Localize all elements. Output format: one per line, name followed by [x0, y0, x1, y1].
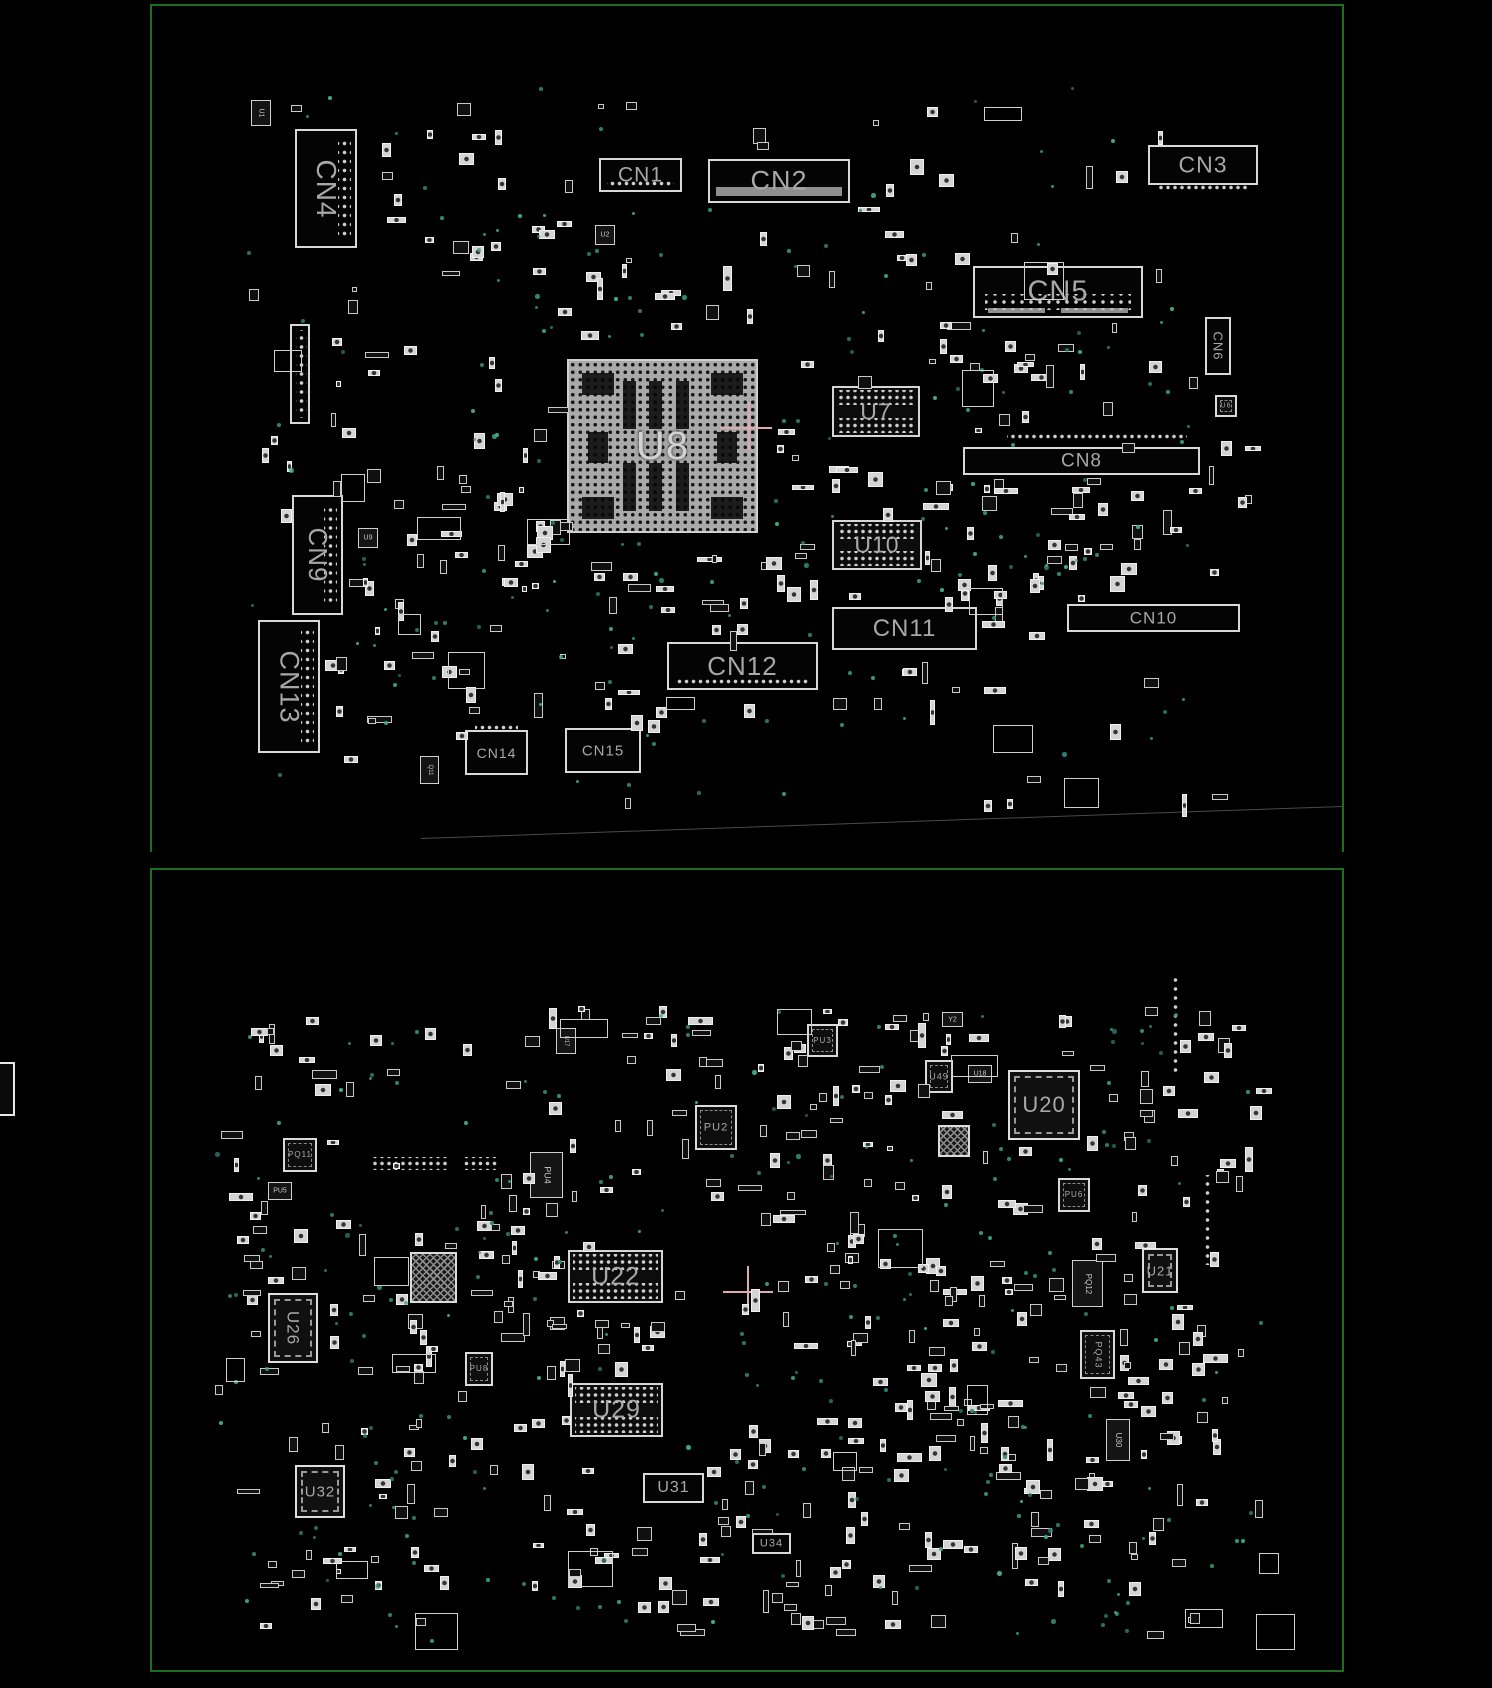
passive-component — [615, 1120, 621, 1132]
component-u8[interactable]: U8 — [567, 359, 758, 533]
passive-component — [455, 552, 468, 558]
component-label: U2 — [601, 232, 610, 239]
passive-component — [1189, 488, 1202, 494]
passive-component — [921, 1373, 937, 1387]
passive-component — [1132, 1212, 1137, 1222]
passive-component — [382, 143, 391, 157]
component-label: U7 — [860, 400, 891, 423]
component-label: CN12 — [707, 653, 777, 679]
via-dot — [1235, 1539, 1239, 1543]
passive-component — [523, 448, 528, 463]
via-dot — [638, 309, 642, 313]
component-u32[interactable]: U32 — [295, 1465, 345, 1518]
via-dot — [473, 1470, 477, 1474]
via-dot — [1028, 1493, 1032, 1497]
passive-component — [798, 1055, 808, 1067]
via-dot — [1051, 1619, 1056, 1624]
passive-component — [498, 178, 506, 190]
via-dot — [289, 468, 294, 473]
passive-component — [969, 1034, 989, 1042]
passive-component — [260, 1368, 279, 1375]
passive-component — [407, 534, 417, 546]
passive-component — [363, 1295, 375, 1302]
passive-component — [260, 1623, 272, 1629]
via-dot — [871, 193, 876, 198]
passive-component — [1007, 799, 1013, 809]
passive-component — [792, 485, 814, 490]
component-bottom_board-part-7[interactable] — [938, 1125, 970, 1157]
component-cn10[interactable]: CN10 — [1067, 604, 1240, 632]
passive-component — [895, 1182, 905, 1190]
passive-component — [712, 555, 717, 563]
passive-component — [348, 300, 358, 314]
component-cn6[interactable]: CN6 — [1205, 317, 1231, 375]
component-cn2[interactable]: CN2 — [708, 159, 850, 203]
component-label: CN3 — [1178, 154, 1227, 177]
component-pq12[interactable]: PQ12 — [1072, 1260, 1103, 1307]
passive-component — [1073, 493, 1083, 508]
component-label: U49 — [929, 1072, 949, 1081]
passive-component — [787, 1192, 795, 1200]
via-dot — [609, 627, 613, 631]
passive-component — [453, 241, 469, 254]
via-dot — [992, 1123, 996, 1127]
component-u26[interactable]: U26 — [268, 1293, 318, 1363]
passive-component — [874, 698, 882, 710]
connector-pads — [296, 330, 307, 418]
passive-component — [583, 1242, 595, 1252]
passive-component — [267, 1028, 274, 1035]
passive-component — [929, 1446, 941, 1461]
passive-component — [1092, 1238, 1102, 1250]
passive-component — [893, 1015, 907, 1022]
passive-component — [1222, 1397, 1228, 1404]
passive-component — [836, 1629, 856, 1636]
passive-component — [926, 282, 932, 290]
passive-component — [327, 1140, 339, 1145]
component-label: Q11 — [427, 765, 433, 776]
via-dot — [1007, 1157, 1011, 1161]
passive-component — [1124, 1294, 1137, 1305]
passive-component — [1100, 544, 1113, 550]
via-dot — [480, 363, 484, 367]
passive-component — [565, 1359, 580, 1372]
bga-ball-cluster — [649, 381, 662, 429]
passive-component — [1192, 1363, 1205, 1376]
passive-component — [1124, 1401, 1138, 1408]
via-dot — [933, 396, 937, 400]
passive-component — [1210, 569, 1219, 576]
passive-component — [494, 1311, 503, 1323]
via-dot — [228, 1294, 232, 1298]
via-dot — [757, 1171, 761, 1175]
passive-component — [931, 559, 941, 572]
passive-component — [358, 1367, 373, 1375]
component-label: PU6 — [1065, 1191, 1084, 1199]
passive-component — [509, 1195, 517, 1212]
passive-component — [878, 330, 884, 342]
passive-component — [666, 1069, 681, 1081]
passive-component — [626, 258, 632, 263]
passive-component — [498, 545, 505, 561]
passive-component — [971, 1276, 984, 1291]
via-dot — [542, 329, 546, 333]
passive-component — [434, 1508, 448, 1517]
passive-component — [522, 586, 527, 592]
component-pu8[interactable]: PU8 — [465, 1352, 493, 1386]
passive-component — [984, 687, 1006, 694]
passive-component — [1008, 1416, 1019, 1428]
passive-component — [655, 293, 675, 300]
via-dot — [552, 1596, 556, 1600]
passive-component — [1145, 1007, 1158, 1016]
via-dot — [471, 409, 475, 413]
component-u20[interactable]: U20 — [1008, 1070, 1080, 1140]
passive-component — [1140, 1089, 1153, 1104]
passive-component — [1019, 1147, 1032, 1156]
component-cn15[interactable]: CN15 — [565, 728, 641, 773]
passive-component — [751, 1289, 760, 1312]
passive-component — [967, 527, 974, 540]
passive-component — [247, 1295, 258, 1305]
passive-component — [557, 221, 572, 227]
passive-component — [642, 1345, 654, 1351]
passive-component — [1090, 1387, 1106, 1398]
passive-component — [868, 472, 883, 487]
component-cn9[interactable]: CN9 — [292, 495, 343, 615]
component-u31[interactable]: U31 — [643, 1473, 704, 1503]
component-cn12[interactable]: CN12 — [667, 642, 818, 690]
passive-component — [1183, 1197, 1190, 1207]
passive-component — [568, 1374, 573, 1397]
passive-component — [984, 485, 990, 493]
passive-component — [1138, 1185, 1147, 1196]
passive-component — [420, 1330, 427, 1345]
passive-component — [440, 1576, 449, 1590]
via-dot — [534, 1257, 538, 1261]
unpopulated-footprint — [448, 652, 485, 689]
via-dot — [1078, 350, 1082, 354]
via-dot — [535, 294, 540, 299]
component-pu6[interactable]: PU6 — [1058, 1178, 1090, 1212]
component-u10[interactable]: U10 — [832, 520, 922, 570]
component-label: U9 — [364, 535, 373, 542]
passive-component — [1212, 794, 1228, 800]
component-u34[interactable]: U34 — [752, 1533, 791, 1554]
passive-component — [796, 1560, 801, 1577]
passive-component — [532, 1419, 545, 1428]
component-u22[interactable]: U22 — [568, 1250, 663, 1303]
bga-ball-cluster — [623, 381, 636, 429]
passive-component — [1236, 1176, 1243, 1192]
passive-component — [777, 575, 785, 592]
via-dot — [824, 244, 828, 248]
component-label: CN10 — [1130, 610, 1177, 627]
component-cn11[interactable]: CN11 — [832, 607, 977, 650]
via-dot — [477, 248, 481, 252]
component-cn1[interactable]: CN1 — [599, 158, 682, 192]
passive-component — [648, 720, 660, 733]
passive-component — [1025, 354, 1035, 361]
component-label: CN6 — [1212, 331, 1225, 360]
passive-component — [417, 554, 424, 568]
passive-component — [801, 361, 814, 368]
passive-component — [801, 1130, 817, 1138]
passive-component — [885, 1620, 901, 1629]
passive-component — [794, 1343, 818, 1349]
passive-component — [471, 1438, 483, 1450]
component-u2[interactable]: U2 — [595, 225, 615, 245]
passive-component — [1029, 1357, 1039, 1363]
passive-component — [532, 583, 539, 589]
passive-component — [1129, 1542, 1137, 1554]
passive-component — [335, 1445, 344, 1460]
component-u9[interactable]: U9 — [358, 528, 378, 548]
unpopulated-footprint — [1064, 778, 1099, 808]
passive-component — [489, 357, 495, 369]
component-label: PU4 — [542, 1166, 551, 1184]
component-pq43[interactable]: PQ43 — [1080, 1330, 1115, 1379]
via-dot — [219, 1421, 223, 1425]
via-dot — [939, 1547, 943, 1551]
passive-component — [778, 429, 795, 435]
passive-component — [994, 488, 1018, 494]
via-dot — [796, 1154, 801, 1159]
passive-component — [833, 698, 847, 710]
passive-component — [925, 1391, 940, 1402]
passive-component — [621, 1323, 630, 1328]
passive-component — [805, 1276, 818, 1283]
passive-component — [707, 1467, 721, 1477]
passive-component — [1118, 1392, 1134, 1399]
passive-component — [415, 1233, 423, 1246]
via-dot — [419, 1414, 423, 1418]
passive-component — [859, 1467, 873, 1473]
passive-component — [1256, 1088, 1272, 1094]
component-cn13[interactable]: CN13 — [258, 620, 320, 753]
passive-component — [306, 1017, 319, 1025]
component-cn4[interactable]: CN4 — [295, 129, 357, 248]
via-dot — [261, 1248, 265, 1252]
passive-component — [842, 1560, 851, 1569]
passive-component — [849, 593, 861, 600]
passive-component — [1193, 1332, 1203, 1346]
via-dot — [1036, 533, 1040, 537]
via-dot — [252, 1552, 256, 1556]
passive-component — [858, 376, 872, 389]
unpopulated-footprint — [374, 1257, 409, 1286]
passive-component — [255, 1076, 262, 1090]
passive-component — [442, 504, 466, 510]
passive-component — [945, 1296, 953, 1306]
passive-component — [523, 1313, 530, 1336]
component-label: U21 — [1147, 1264, 1174, 1277]
component-pu5[interactable]: PU5 — [268, 1182, 292, 1200]
component-u6[interactable]: U6 — [1215, 395, 1237, 417]
component-cn14[interactable]: CN14 — [465, 730, 528, 775]
via-dot — [595, 249, 599, 253]
via-dot — [1083, 557, 1087, 561]
passive-component — [1075, 1478, 1089, 1490]
component-u21[interactable]: U21 — [1142, 1248, 1178, 1293]
passive-component — [700, 1557, 720, 1563]
passive-component — [885, 1095, 892, 1105]
passive-component — [936, 1435, 956, 1442]
passive-component — [466, 687, 476, 703]
passive-component — [632, 1169, 641, 1175]
passive-component — [504, 1301, 513, 1307]
boardview-canvas: U1CN4CN1CN2U2CN3CN5CN6U8U7CN8U6U10CN9U9C… — [0, 0, 1492, 1688]
passive-component — [533, 1543, 544, 1548]
passive-component — [425, 237, 434, 243]
passive-component — [1023, 1205, 1043, 1213]
component-pq11[interactable]: PQ11 — [283, 1138, 317, 1172]
passive-component — [810, 1104, 817, 1110]
passive-component — [745, 1481, 754, 1495]
passive-component — [899, 1523, 910, 1530]
passive-component — [907, 1365, 921, 1371]
passive-component — [980, 1447, 988, 1454]
passive-component — [577, 1310, 584, 1317]
passive-component — [1110, 576, 1125, 592]
passive-component — [1198, 1033, 1214, 1041]
component-label: CN14 — [477, 746, 517, 760]
passive-component — [772, 1593, 783, 1603]
via-dot — [345, 1233, 350, 1238]
passive-component — [644, 1033, 653, 1039]
passive-component — [1210, 1252, 1219, 1267]
via-dot — [339, 1088, 343, 1092]
passive-component — [830, 1265, 840, 1274]
passive-component — [946, 1034, 951, 1045]
passive-component — [706, 1179, 721, 1187]
passive-component — [873, 120, 879, 126]
passive-component — [927, 107, 938, 117]
passive-component — [387, 1069, 400, 1076]
component-q11[interactable]: Q11 — [420, 756, 439, 784]
unpopulated-footprint — [341, 474, 365, 502]
via-dot — [1210, 1564, 1214, 1568]
passive-component — [763, 1590, 769, 1613]
passive-component — [229, 1193, 253, 1201]
passive-component — [251, 1331, 261, 1337]
passive-component — [634, 1327, 640, 1343]
component-label: U34 — [760, 1538, 783, 1549]
passive-component — [299, 1057, 315, 1063]
passive-component — [864, 1179, 872, 1187]
passive-component — [495, 130, 502, 145]
passive-component — [548, 407, 569, 413]
via-dot — [576, 1606, 580, 1610]
passive-component — [671, 323, 682, 330]
component-y2[interactable]: Y2 — [942, 1012, 963, 1027]
passive-component — [490, 1465, 498, 1475]
via-dot — [829, 1399, 833, 1403]
passive-component — [404, 1448, 415, 1457]
passive-component — [675, 1291, 685, 1300]
component-top_board-part-8[interactable] — [290, 324, 310, 424]
passive-component — [594, 573, 605, 581]
passive-component — [740, 598, 748, 609]
unpopulated-footprint — [415, 1613, 458, 1650]
component-pu2[interactable]: PU2 — [695, 1105, 737, 1150]
passive-component — [996, 1472, 1021, 1480]
passive-component — [838, 1019, 848, 1026]
passive-component — [395, 1506, 408, 1519]
passive-component — [1011, 233, 1018, 243]
passive-component — [786, 1582, 799, 1587]
via-dot — [314, 1526, 318, 1530]
unpopulated-footprint — [969, 588, 1003, 615]
passive-component — [846, 1527, 855, 1544]
passive-component — [850, 1212, 859, 1234]
passive-component — [706, 305, 719, 320]
passive-component — [672, 1590, 687, 1605]
passive-component — [1162, 1392, 1173, 1404]
via-dot — [782, 792, 786, 796]
passive-component — [1030, 579, 1040, 593]
passive-component — [998, 1200, 1016, 1208]
passive-component — [637, 1527, 652, 1541]
passive-component — [955, 253, 970, 265]
via-dot — [539, 87, 543, 91]
passive-component — [512, 1241, 517, 1255]
passive-component — [289, 1437, 298, 1452]
component-cn3[interactable]: CN3 — [1148, 145, 1258, 185]
component-bottom_board-part-13[interactable] — [410, 1252, 457, 1303]
passive-component — [810, 580, 818, 600]
bga-ball-cluster — [717, 432, 738, 463]
passive-component — [387, 217, 406, 223]
passive-component — [979, 1295, 985, 1307]
passive-component — [943, 1540, 963, 1549]
pad-strip — [1171, 975, 1180, 1075]
passive-component — [974, 1328, 980, 1336]
component-u1[interactable]: U1 — [251, 100, 271, 126]
passive-component — [472, 134, 486, 140]
passive-component — [998, 1400, 1023, 1407]
passive-component — [672, 1110, 687, 1116]
passive-component — [522, 1464, 534, 1480]
component-u29[interactable]: U29 — [570, 1383, 663, 1437]
via-dot — [1159, 1051, 1163, 1055]
via-dot — [1101, 1623, 1105, 1627]
component-u30[interactable]: U30 — [1106, 1419, 1130, 1461]
via-dot — [847, 337, 851, 341]
passive-component — [1203, 1354, 1228, 1363]
passive-component — [1062, 1051, 1074, 1056]
passive-component — [615, 1362, 628, 1377]
passive-component — [500, 492, 505, 512]
passive-component — [829, 271, 835, 288]
via-dot — [1024, 1271, 1028, 1275]
passive-component — [1147, 1631, 1164, 1639]
passive-component — [699, 1533, 707, 1546]
passive-component — [618, 690, 640, 695]
component-cn8[interactable]: CN8 — [963, 447, 1200, 475]
via-dot — [787, 249, 791, 253]
passive-component — [394, 194, 402, 206]
unpopulated-footprint — [274, 350, 302, 372]
unpopulated-footprint — [392, 1354, 436, 1373]
component-u7[interactable]: U7 — [832, 386, 920, 437]
passive-component — [1084, 1520, 1099, 1528]
passive-component — [783, 1312, 789, 1327]
passive-component — [931, 1615, 946, 1628]
via-dot — [423, 186, 427, 190]
passive-component — [795, 553, 807, 559]
passive-component — [437, 466, 444, 480]
